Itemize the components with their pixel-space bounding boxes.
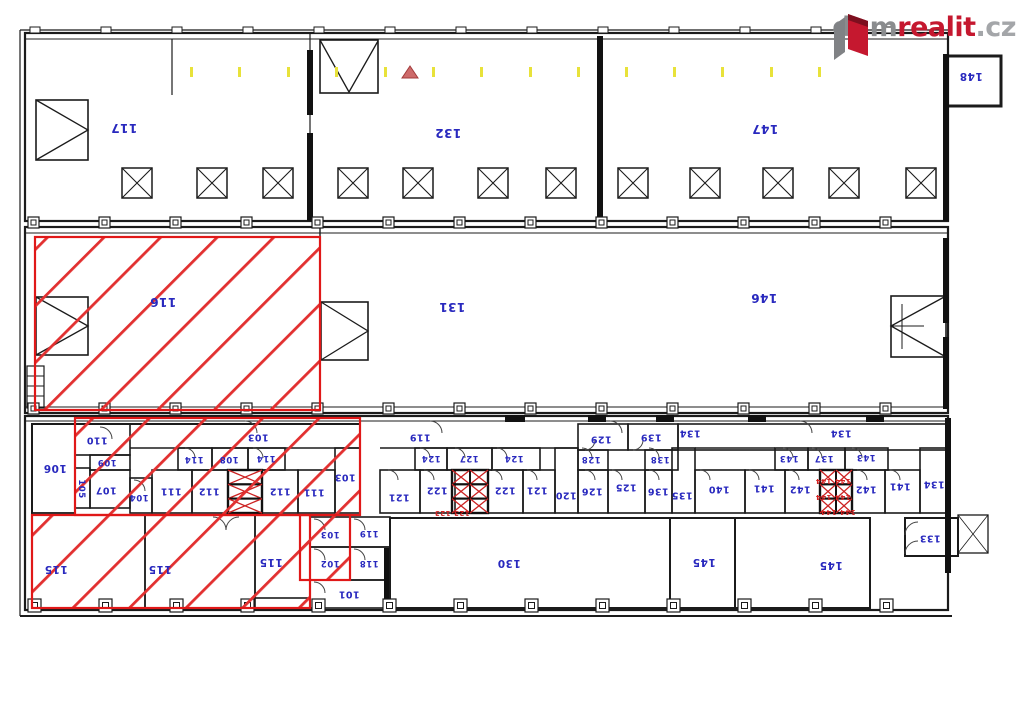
floorplan-drawing bbox=[0, 0, 1024, 724]
gate-hall-117 bbox=[36, 100, 88, 160]
dumrealit-logo[interactable]: dumrealit.cz bbox=[832, 8, 1016, 48]
gate-room-131 bbox=[321, 302, 368, 360]
floorplan-canvas: 1171321471481161311461101061091051071041… bbox=[0, 0, 1024, 724]
room-148-walls bbox=[948, 56, 1001, 106]
gate-hall-132 bbox=[320, 40, 378, 93]
logo-text-cz: .cz bbox=[976, 12, 1016, 43]
hatch-unit-102-103 bbox=[300, 515, 350, 580]
hatch-unit-left-cluster bbox=[75, 418, 360, 515]
gate-room-146 bbox=[891, 296, 946, 357]
logo-text-realit: realit bbox=[897, 12, 975, 43]
room-106-walls bbox=[32, 424, 75, 513]
highlighted-units-hatch bbox=[32, 237, 360, 608]
thick-wall-segments bbox=[307, 36, 951, 600]
dumrealit-logo-icon bbox=[832, 8, 872, 60]
red-triangle-marker bbox=[402, 66, 418, 78]
hatch-unit-115 bbox=[32, 515, 310, 608]
hatch-unit-116 bbox=[35, 237, 320, 410]
